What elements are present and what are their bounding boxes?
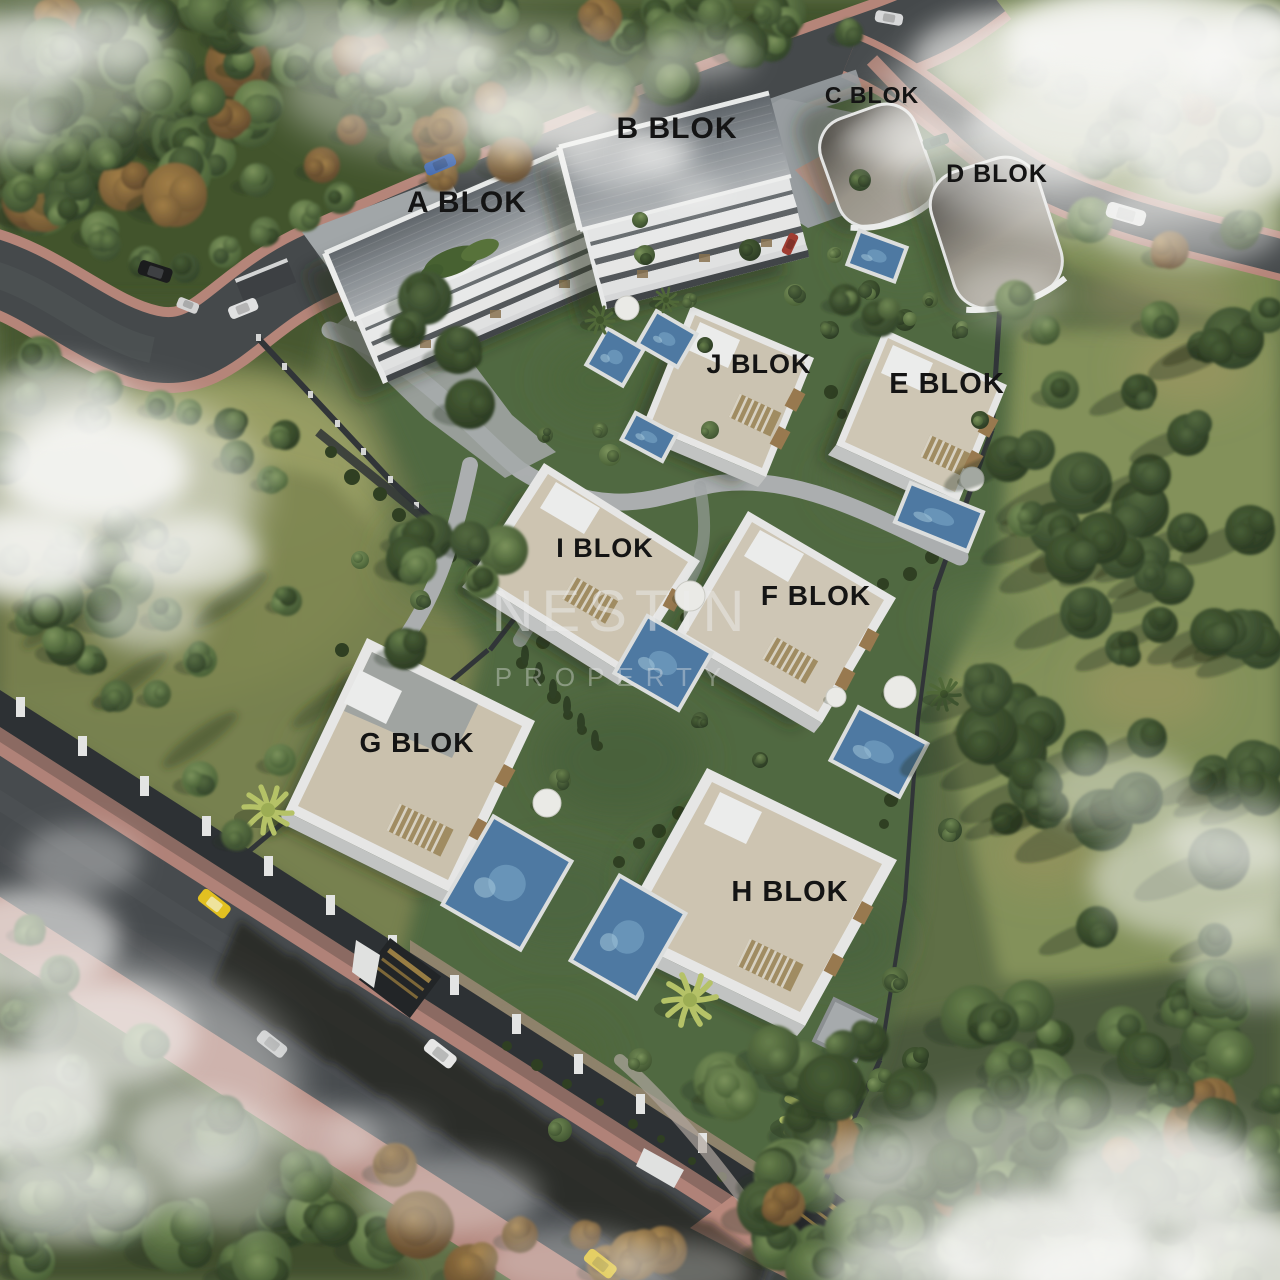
svg-text:D BLOK: D BLOK: [946, 160, 1048, 188]
svg-text:A BLOK: A BLOK: [407, 186, 527, 219]
svg-text:H BLOK: H BLOK: [731, 876, 848, 908]
svg-text:C BLOK: C BLOK: [825, 82, 919, 108]
svg-text:J BLOK: J BLOK: [706, 349, 811, 379]
svg-text:E BLOK: E BLOK: [889, 368, 1005, 400]
svg-text:F BLOK: F BLOK: [761, 580, 871, 611]
svg-text:PROPERTY: PROPERTY: [495, 662, 734, 692]
svg-text:I BLOK: I BLOK: [556, 533, 654, 563]
svg-text:B BLOK: B BLOK: [617, 112, 738, 145]
svg-text:G BLOK: G BLOK: [360, 727, 475, 758]
svg-text:NESTIN: NESTIN: [492, 579, 753, 644]
